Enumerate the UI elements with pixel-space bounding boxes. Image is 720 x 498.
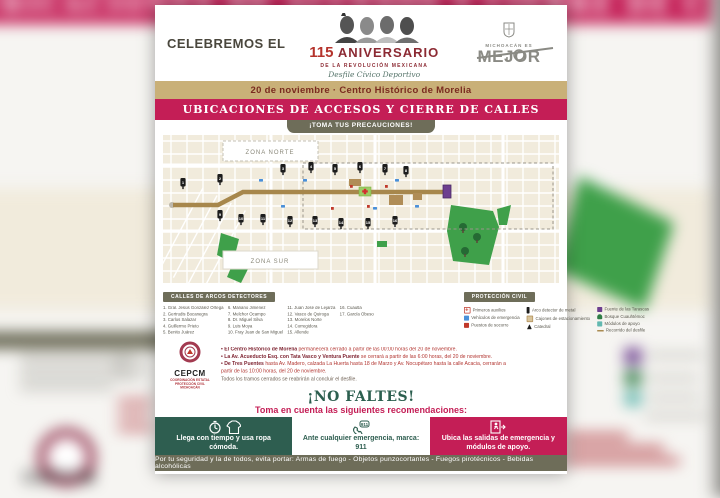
note-footer: Todos los tramos cerrados se reabrirán a…: [221, 376, 507, 383]
pc-item-label: Recorrido del desfile: [606, 329, 645, 333]
poster-bottom-margin: [155, 471, 567, 474]
recommendation-text: Llega con tiempo y usa ropa cómoda.: [165, 435, 282, 453]
recommendation-text: Ubica las salidas de emergencia y módulo…: [440, 435, 557, 453]
pc-item: Fuente de las Tarascas: [597, 307, 649, 312]
closure-notes: • El Centro Histórico de Morelia permane…: [221, 347, 507, 384]
bg-legend-label: [648, 353, 702, 357]
car-icon: [281, 205, 285, 208]
bg-red-line: [118, 413, 149, 417]
rescue-icon: [464, 323, 469, 328]
street-item: 3. Carlos Salazar: [163, 318, 224, 322]
bg-legend-icon: [625, 391, 641, 405]
street-item: 8. Dr. Miguel Silva: [228, 318, 283, 322]
route-dash-icon: [597, 330, 603, 331]
aid-icon: [331, 207, 334, 210]
street-item: 15. Allende: [287, 330, 335, 334]
car-icon: [259, 179, 263, 182]
street-item: 7. Melchor Ocampo: [228, 312, 283, 316]
bg-legend-icon: [625, 348, 641, 364]
street-item: 12. Vasco de Quiroga: [287, 312, 335, 316]
cepcm-line1: COORDINACIÓN ESTATAL: [168, 378, 213, 382]
streets-column: 1. Gral. Jesús González Ortega2. Gertrud…: [163, 306, 224, 335]
anniv-script: Desfile Cívico Deportivo: [289, 70, 459, 79]
car-icon: [395, 179, 399, 182]
car-icon: [303, 179, 307, 182]
pc-item: Primeros auxilios: [464, 307, 520, 313]
bg-legend-label: [648, 396, 700, 400]
pc-item-label: Módulos de apoyo: [604, 322, 639, 326]
street-item: 16. Cuautla: [340, 306, 374, 310]
fountain-icon: [597, 307, 602, 312]
clock-shirt-icon: [207, 420, 241, 434]
note-line: • De Tres Puentes hasta Av. Madero, calz…: [221, 361, 507, 376]
streets-column: 16. Cuautla17. García Obeso: [340, 306, 374, 335]
revolutionary-figures-image: [319, 13, 429, 43]
pc-item: Vehículos de emergencia: [464, 316, 520, 321]
pc-column: Fuente de las TarascasBosque CuauhtémocM…: [597, 307, 649, 333]
svg-text:15: 15: [366, 220, 371, 225]
modules-icon: [597, 321, 602, 326]
street-item: 4. Guillermo Prieto: [163, 324, 224, 328]
streets-column: 11. Juan José de Lejarza12. Vasco de Qui…: [287, 306, 335, 335]
michoacan-es-mejor-logo: MICHOACÁN ES MEJOR: [463, 22, 555, 65]
pc-item: Recorrido del desfile: [597, 329, 649, 333]
street-item: 11. Juan José de Lejarza: [287, 306, 335, 310]
bg-legend-label: [645, 414, 705, 418]
recommendation-exits: Ubica las salidas de emergencia y módulo…: [430, 417, 567, 455]
first-aid-station: [359, 187, 371, 196]
street-item: 6. Mariano Jiménez: [228, 306, 283, 310]
aid-icon: [385, 185, 388, 188]
recommendation-arrive-early: Llega con tiempo y usa ropa cómoda.: [155, 417, 292, 455]
bg-text-line: [20, 366, 123, 369]
street-map: 12345678910111213141516 ZONA NORTE ZONA …: [163, 135, 559, 283]
pc-item-label: Fuente de las Tarascas: [604, 307, 649, 311]
recommendations-row: Llega con tiempo y usa ropa cómoda. 911 …: [155, 417, 567, 455]
metal-arch-icon: [527, 307, 530, 313]
car-icon: [373, 207, 377, 210]
bg-right-edge: [710, 0, 720, 498]
phone-911-icon: 911: [351, 420, 371, 434]
street-item: 1. Gral. Jesús González Ortega: [163, 306, 224, 310]
pc-item-label: Cajones de estacionamiento: [535, 317, 590, 321]
pc-column: Primeros auxiliosVehículos de emergencia…: [464, 307, 520, 333]
bg-legend-label: [648, 376, 697, 380]
cepcm-emblem-icon: [179, 341, 201, 363]
closure-notes-section: CEPCM COORDINACIÓN ESTATAL PROTECCIÓN CI…: [155, 341, 567, 389]
aid-icon: [350, 185, 353, 188]
no-faltes-subtitle: Toma en cuenta las siguientes recomendac…: [155, 405, 567, 415]
recommendation-text: Ante cualquier emergencia, marca: 911: [302, 435, 419, 453]
bg-text-line: [20, 376, 138, 379]
bosque-cuauhtemoc: [447, 205, 499, 265]
pc-item: Cajones de estacionamiento: [527, 316, 590, 322]
cepcm-name: CEPCM: [165, 369, 215, 378]
svg-text:16: 16: [393, 218, 398, 223]
pc-item-label: Vehículos de emergencia: [471, 316, 520, 320]
rifle-icon: [463, 44, 555, 64]
pc-list: Primeros auxiliosVehículos de emergencia…: [464, 307, 720, 333]
pc-item-label: Bosque Cuauhtémoc: [604, 315, 644, 319]
first-aid-icon: [464, 307, 470, 313]
streets-list: 1. Gral. Jesús González Ortega2. Gertrud…: [163, 306, 456, 335]
street-item: 17. García Obeso: [340, 312, 374, 316]
cepcm-logo: CEPCM COORDINACIÓN ESTATAL PROTECCIÓN CI…: [165, 341, 215, 390]
svg-text:10: 10: [239, 216, 244, 221]
pc-item: Catedral: [527, 324, 590, 329]
aid-icon: [367, 205, 370, 208]
main-banner: UBICACIONES DE ACCESOS Y CIERRE DE CALLE…: [155, 99, 567, 120]
date-location-bar: 20 de noviembre · Centro Histórico de Mo…: [155, 81, 567, 99]
ambulance-icon: [464, 316, 469, 321]
pc-item-label: Arco detector de metal: [532, 308, 575, 312]
street-item: 13. Morelos Norte: [287, 318, 335, 322]
anniv-title: ANIVERSARIO: [338, 45, 439, 60]
pc-column: Arco detector de metalCajones de estacio…: [527, 307, 590, 333]
recommendation-emergency-911: 911 Ante cualquier emergencia, marca: 91…: [292, 417, 429, 455]
street-item: 5. Benito Juárez: [163, 330, 224, 334]
bg-red-line: [566, 446, 664, 451]
map-container: 12345678910111213141516 ZONA NORTE ZONA …: [155, 133, 567, 285]
svg-text:911: 911: [361, 422, 369, 427]
tab-row: ¡TOMA TUS PRECAUCIONES!: [155, 120, 567, 133]
pc-item-label: Primeros auxilios: [472, 308, 505, 312]
legend-row: CALLES DE ARCOS DETECTORES 1. Gral. Jesú…: [155, 285, 567, 341]
bg-text-line: [20, 386, 113, 389]
pc-item-label: Catedral: [534, 325, 550, 329]
bg-red-line: [118, 426, 152, 430]
celebremos-text: CELEBREMOS EL: [167, 36, 285, 51]
pc-item: Puestos de socorro: [464, 323, 520, 328]
fuente-tarascas-marker: [443, 185, 451, 198]
cathedral-icon: [527, 324, 532, 329]
legend-streets-title: CALLES DE ARCOS DETECTORES: [163, 292, 275, 302]
zona-norte-label: ZONA NORTE: [246, 150, 295, 156]
pc-item: Arco detector de metal: [527, 307, 590, 313]
park-rect: [377, 241, 387, 247]
bg-red-line: [566, 458, 679, 463]
anniv-115: 115: [309, 44, 333, 61]
no-faltes-section: ¡NO FALTES! Toma en cuenta las siguiente…: [155, 389, 567, 417]
bg-legend-icon: [625, 371, 641, 385]
emergency-exit-icon: [490, 420, 506, 434]
cepcm-line2: PROTECCIÓN CIVIL MICHOACÁN: [168, 382, 213, 389]
no-faltes-title: ¡NO FALTES!: [155, 389, 567, 405]
precaution-tab: ¡TOMA TUS PRECAUCIONES!: [287, 120, 435, 133]
svg-text:14: 14: [339, 220, 344, 225]
legend-proteccion-civil: PROTECCIÓN CIVIL Primeros auxiliosVehícu…: [464, 285, 720, 341]
pc-item: Bosque Cuauhtémoc: [597, 314, 649, 319]
bg-cepcm-text: CEPCM: [23, 468, 97, 489]
zona-sur-label: ZONA SUR: [251, 259, 290, 265]
legend-pc-title: PROTECCIÓN CIVIL: [464, 292, 536, 302]
parking-icon: [527, 316, 533, 322]
safety-bottom-bar: Por tu seguridad y la de todos, evita po…: [155, 455, 567, 471]
street-item: 14. Corregidora: [287, 324, 335, 328]
legend-streets: CALLES DE ARCOS DETECTORES 1. Gral. Jesú…: [163, 285, 456, 341]
poster-header: CELEBREMOS EL 115 ANIVERSARIO DE LA REVO…: [155, 5, 567, 81]
streets-column: 6. Mariano Jiménez7. Melchor Ocampo8. Dr…: [228, 306, 283, 335]
car-icon: [415, 205, 419, 208]
anniv-subtitle: DE LA REVOLUCIÓN MEXICANA: [289, 63, 459, 69]
michoacan-crest-icon: [502, 22, 516, 38]
park-icon: [597, 314, 602, 319]
anniversary-logo: 115 ANIVERSARIO DE LA REVOLUCIÓN MEXICAN…: [289, 13, 459, 79]
street-item: 10. Fray Juan de San Miguel: [228, 330, 283, 334]
bg-text-line: [115, 369, 146, 372]
event-poster: CELEBREMOS EL 115 ANIVERSARIO DE LA REVO…: [155, 5, 567, 474]
street-item: 2. Gertrudis Bocanegra: [163, 312, 224, 316]
pc-item-label: Puestos de socorro: [471, 323, 508, 327]
svg-text:12: 12: [288, 218, 293, 223]
street-item: 9. Luis Moya: [228, 324, 283, 328]
pc-item: Módulos de apoyo: [597, 321, 649, 326]
bg-red-line: [118, 400, 151, 404]
svg-text:13: 13: [313, 218, 318, 223]
bg-red-line: [566, 434, 628, 439]
bg-text-line: [115, 358, 146, 361]
